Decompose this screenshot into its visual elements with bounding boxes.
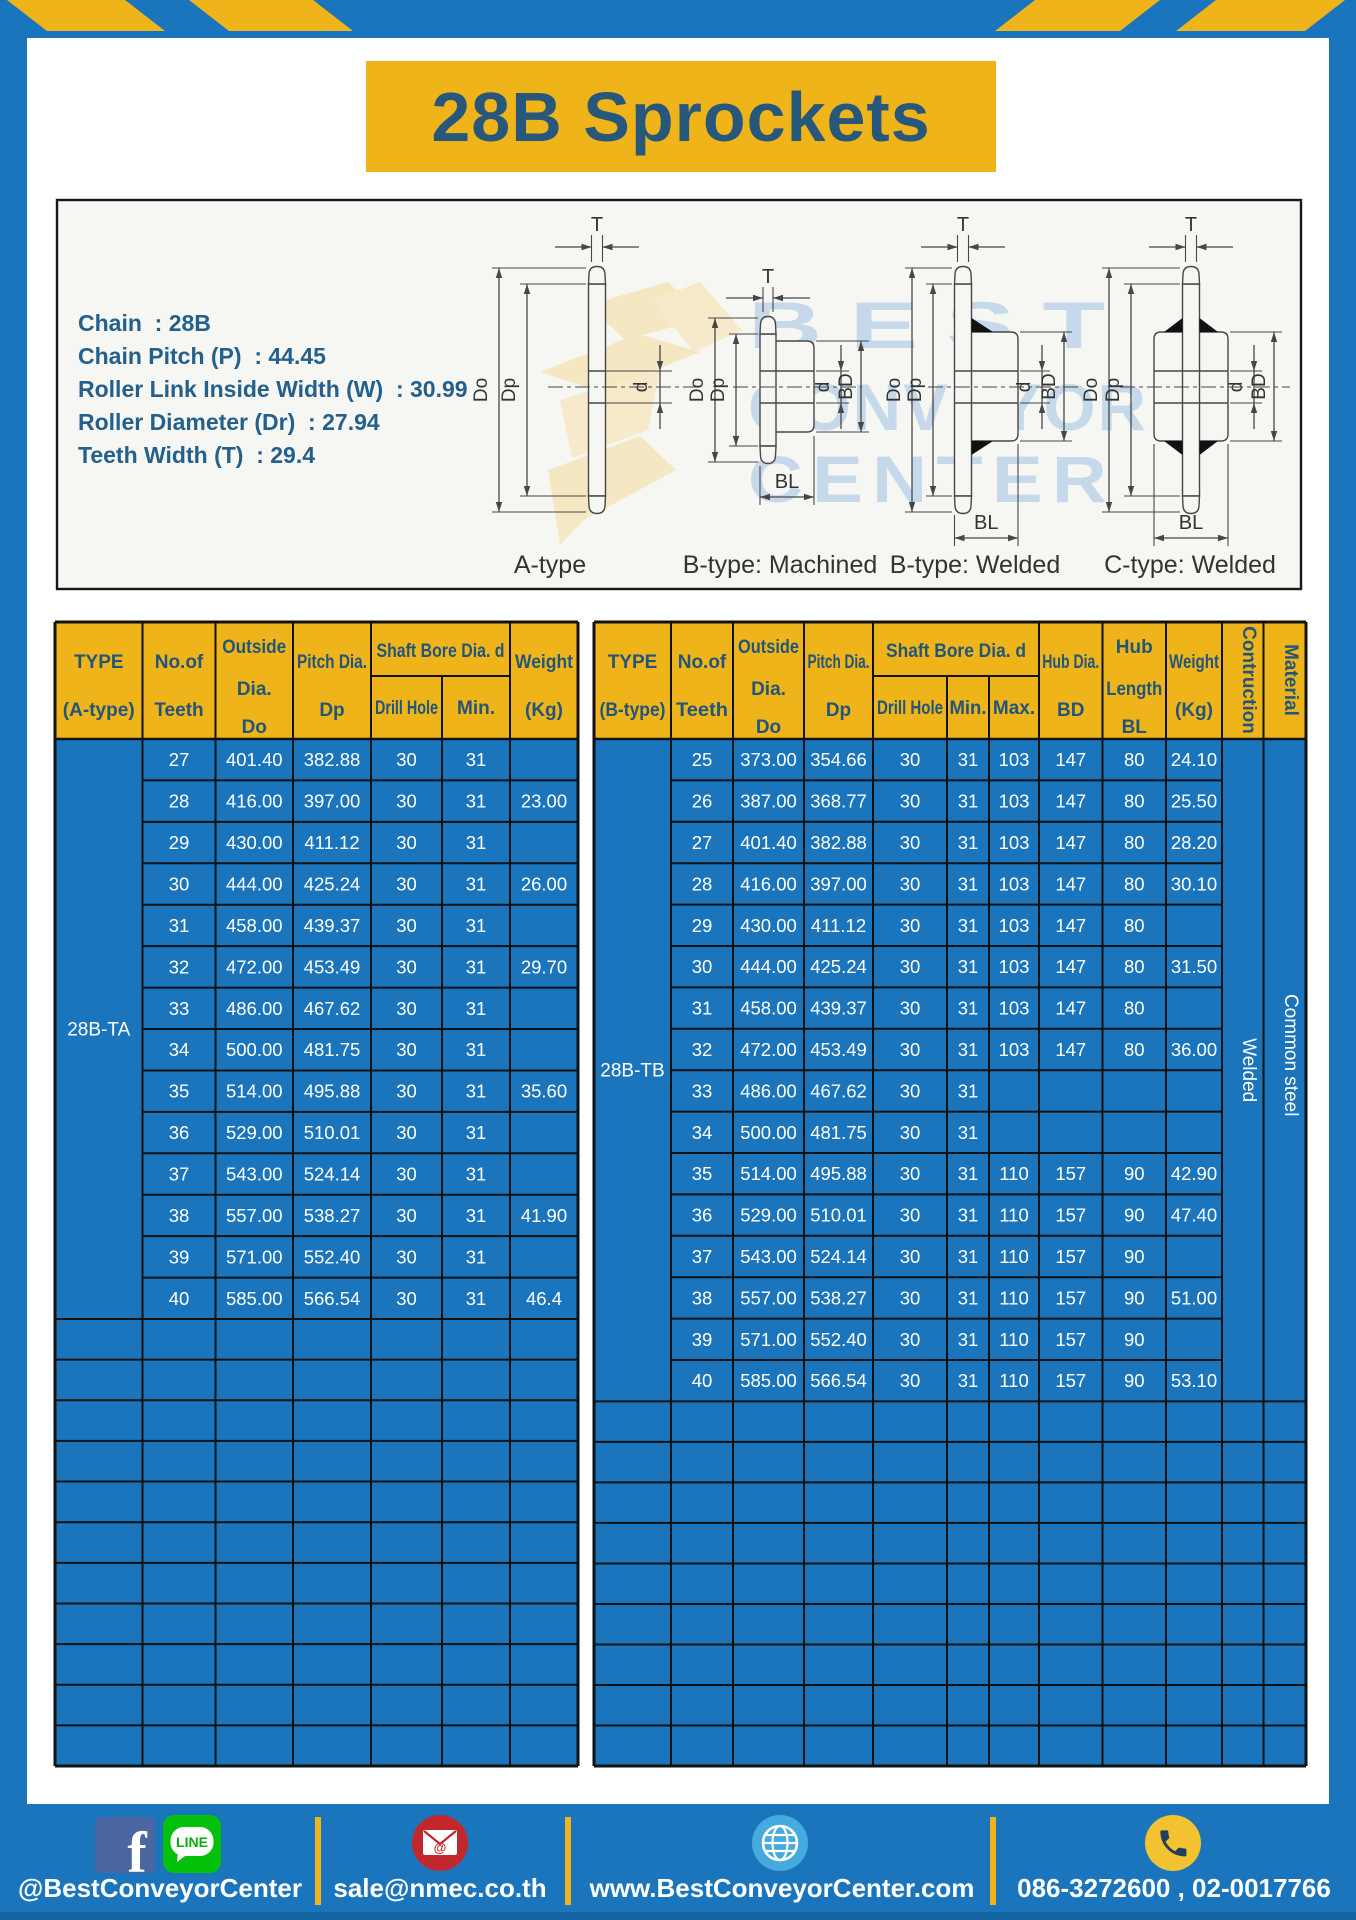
svg-text:35: 35 [169, 1081, 190, 1102]
svg-text:B-type: Welded: B-type: Welded [890, 551, 1060, 579]
svg-text:31: 31 [958, 1205, 979, 1226]
svg-text:30: 30 [396, 832, 417, 853]
svg-text:110: 110 [999, 1163, 1029, 1184]
svg-text:Outside: Outside [222, 637, 286, 658]
svg-text:28B-TA: 28B-TA [67, 1020, 130, 1041]
svg-text:401.40: 401.40 [226, 749, 283, 770]
svg-text:31: 31 [958, 1329, 979, 1350]
svg-text:Drill Hole: Drill Hole [375, 698, 438, 719]
svg-text:34: 34 [692, 1122, 713, 1143]
svg-text:472.00: 472.00 [226, 956, 283, 977]
svg-text:458.00: 458.00 [740, 998, 797, 1019]
svg-text:(Kg): (Kg) [525, 700, 563, 721]
svg-text:@: @ [434, 1840, 447, 1855]
svg-text:Min.: Min. [457, 698, 495, 719]
svg-text:585.00: 585.00 [740, 1370, 797, 1391]
svg-text:Roller Diameter (Dr) : 27.94: Roller Diameter (Dr) : 27.94 [78, 409, 380, 435]
svg-text:27: 27 [169, 749, 190, 770]
svg-text:543.00: 543.00 [226, 1164, 283, 1185]
svg-text:31: 31 [466, 998, 487, 1019]
svg-text:34: 34 [169, 1039, 190, 1060]
svg-text:373.00: 373.00 [740, 749, 797, 770]
svg-text:387.00: 387.00 [740, 791, 797, 812]
svg-text:31: 31 [466, 915, 487, 936]
svg-text:Shaft Bore Dia. d: Shaft Bore Dia. d [886, 641, 1026, 662]
svg-text:30: 30 [900, 873, 921, 894]
svg-text:27: 27 [692, 832, 713, 853]
svg-text:T: T [591, 214, 603, 236]
svg-text:31: 31 [958, 915, 979, 936]
svg-text:30: 30 [900, 1080, 921, 1101]
svg-text:30: 30 [900, 791, 921, 812]
svg-text:31: 31 [958, 1080, 979, 1101]
svg-text:30: 30 [900, 1329, 921, 1350]
svg-text:46.4: 46.4 [526, 1288, 562, 1309]
svg-text:T: T [1185, 214, 1197, 236]
svg-text:28: 28 [692, 873, 713, 894]
svg-text:31: 31 [958, 998, 979, 1019]
svg-text:425.24: 425.24 [810, 956, 867, 977]
svg-text:80: 80 [1124, 832, 1145, 853]
svg-text:Outside: Outside [738, 637, 799, 658]
svg-text:80: 80 [1124, 915, 1145, 936]
svg-text:Teeth: Teeth [154, 700, 203, 721]
svg-text:30: 30 [900, 832, 921, 853]
svg-text:Teeth: Teeth [676, 700, 728, 721]
svg-text:TYPE: TYPE [608, 652, 658, 673]
svg-text:BL: BL [1179, 512, 1203, 534]
svg-text:439.37: 439.37 [304, 915, 361, 936]
svg-text:Chain Pitch (P) : 44.45: Chain Pitch (P) : 44.45 [78, 343, 326, 369]
svg-text:37: 37 [169, 1164, 190, 1185]
svg-text:Chain : 28B: Chain : 28B [78, 310, 211, 336]
svg-text:29: 29 [692, 915, 713, 936]
svg-text:BD: BD [1039, 373, 1060, 399]
svg-text:30: 30 [900, 1205, 921, 1226]
svg-text:38: 38 [169, 1205, 190, 1226]
svg-text:416.00: 416.00 [226, 791, 283, 812]
svg-text:30: 30 [396, 791, 417, 812]
svg-text:31: 31 [466, 1164, 487, 1185]
svg-text:31: 31 [692, 998, 713, 1019]
svg-text:401.40: 401.40 [740, 832, 797, 853]
svg-text:30: 30 [900, 956, 921, 977]
svg-text:90: 90 [1124, 1329, 1145, 1350]
svg-text:31: 31 [958, 1122, 979, 1143]
svg-text:368.77: 368.77 [810, 791, 867, 812]
svg-text:31: 31 [958, 832, 979, 853]
svg-text:A-type: A-type [514, 551, 586, 579]
svg-text:33: 33 [169, 998, 190, 1019]
svg-text:Dp: Dp [708, 378, 729, 402]
svg-text:41.90: 41.90 [521, 1205, 567, 1226]
svg-text:31: 31 [958, 1246, 979, 1267]
svg-text:30: 30 [900, 1287, 921, 1308]
svg-text:486.00: 486.00 [226, 998, 283, 1019]
svg-text:d: d [631, 382, 652, 393]
svg-text:103: 103 [999, 915, 1030, 936]
svg-text:430.00: 430.00 [226, 832, 283, 853]
svg-text:31: 31 [466, 791, 487, 812]
svg-text:566.54: 566.54 [810, 1370, 867, 1391]
svg-text:524.14: 524.14 [304, 1164, 361, 1185]
svg-text:31: 31 [466, 1039, 487, 1060]
svg-text:80: 80 [1124, 749, 1145, 770]
svg-text:Hub: Hub [1116, 637, 1153, 658]
svg-text:Dp: Dp [905, 378, 926, 402]
svg-text:LINE: LINE [176, 1834, 208, 1850]
svg-text:439.37: 439.37 [810, 998, 867, 1019]
svg-text:31: 31 [466, 874, 487, 895]
svg-text:110: 110 [999, 1329, 1029, 1350]
svg-text:T: T [957, 214, 969, 236]
svg-text:481.75: 481.75 [304, 1039, 361, 1060]
svg-text:Dp: Dp [826, 700, 851, 721]
svg-text:103: 103 [999, 998, 1030, 1019]
svg-text:444.00: 444.00 [740, 956, 797, 977]
svg-text:42.90: 42.90 [1171, 1163, 1217, 1184]
svg-text:BL: BL [1122, 717, 1148, 738]
svg-text:36: 36 [692, 1205, 713, 1226]
svg-text:538.27: 538.27 [304, 1205, 361, 1226]
svg-text:90: 90 [1124, 1287, 1145, 1308]
svg-text:585.00: 585.00 [226, 1288, 283, 1309]
svg-text:30: 30 [396, 956, 417, 977]
svg-text:086-3272600 , 02-0017766: 086-3272600 , 02-0017766 [1017, 1873, 1331, 1903]
svg-text:d: d [813, 382, 834, 393]
svg-text:BL: BL [974, 512, 998, 534]
svg-text:31: 31 [169, 915, 190, 936]
svg-text:31: 31 [466, 956, 487, 977]
svg-text:31: 31 [466, 832, 487, 853]
svg-text:557.00: 557.00 [226, 1205, 283, 1226]
svg-text:51.00: 51.00 [1171, 1287, 1217, 1308]
svg-text:Min.: Min. [950, 698, 987, 719]
svg-text:31: 31 [466, 1288, 487, 1309]
svg-text:BD: BD [1249, 373, 1270, 399]
svg-text:38: 38 [692, 1287, 713, 1308]
svg-text:147: 147 [1055, 956, 1086, 977]
svg-text:157: 157 [1055, 1287, 1086, 1308]
svg-text:32: 32 [169, 956, 190, 977]
svg-text:Pitch Dia.: Pitch Dia. [297, 652, 367, 673]
svg-text:30: 30 [396, 1164, 417, 1185]
svg-text:453.49: 453.49 [810, 1039, 867, 1060]
svg-text:30: 30 [900, 998, 921, 1019]
svg-text:514.00: 514.00 [226, 1081, 283, 1102]
svg-text:Hub Dia.: Hub Dia. [1042, 652, 1099, 673]
svg-text:495.88: 495.88 [810, 1163, 867, 1184]
svg-text:486.00: 486.00 [740, 1080, 797, 1101]
svg-text:500.00: 500.00 [740, 1122, 797, 1143]
svg-text:90: 90 [1124, 1163, 1145, 1184]
svg-text:36.00: 36.00 [1171, 1039, 1217, 1060]
svg-text:40: 40 [169, 1288, 190, 1309]
svg-text:147: 147 [1055, 873, 1086, 894]
svg-text:C-type: Welded: C-type: Welded [1104, 551, 1276, 579]
svg-text:80: 80 [1124, 873, 1145, 894]
svg-text:481.75: 481.75 [810, 1122, 867, 1143]
svg-text:Length: Length [1106, 679, 1162, 700]
svg-text:30: 30 [396, 915, 417, 936]
svg-text:T: T [762, 266, 774, 288]
svg-text:37: 37 [692, 1246, 713, 1267]
svg-text:147: 147 [1055, 1039, 1086, 1060]
svg-text:382.88: 382.88 [304, 749, 361, 770]
svg-text:30: 30 [396, 1246, 417, 1267]
svg-text:30.10: 30.10 [1171, 873, 1217, 894]
svg-text:No.of: No.of [678, 652, 727, 673]
svg-text:31: 31 [958, 1287, 979, 1308]
svg-text:411.12: 411.12 [304, 832, 359, 853]
svg-text:31: 31 [958, 873, 979, 894]
svg-text:472.00: 472.00 [740, 1039, 797, 1060]
svg-text:30: 30 [692, 956, 713, 977]
svg-text:103: 103 [999, 873, 1030, 894]
svg-text:BD: BD [1057, 700, 1084, 721]
svg-text:30: 30 [900, 1039, 921, 1060]
svg-text:25: 25 [692, 749, 713, 770]
svg-text:Weight: Weight [1169, 652, 1220, 673]
svg-text:30: 30 [396, 874, 417, 895]
svg-text:31: 31 [958, 956, 979, 977]
svg-text:157: 157 [1055, 1205, 1086, 1226]
svg-text:Common steel: Common steel [1280, 994, 1301, 1117]
svg-text:32: 32 [692, 1039, 713, 1060]
svg-text:500.00: 500.00 [226, 1039, 283, 1060]
svg-text:35: 35 [692, 1163, 713, 1184]
svg-text:Roller Link Inside Width (W): Roller Link Inside Width (W) : 30.99 [78, 376, 468, 402]
svg-text:430.00: 430.00 [740, 915, 797, 936]
svg-text:110: 110 [999, 1370, 1029, 1391]
svg-text:416.00: 416.00 [740, 873, 797, 894]
svg-text:47.40: 47.40 [1171, 1205, 1217, 1226]
svg-text:552.40: 552.40 [304, 1246, 361, 1267]
svg-text:Do: Do [1081, 378, 1102, 402]
svg-text:510.01: 510.01 [304, 1122, 361, 1143]
svg-text:103: 103 [999, 749, 1030, 770]
svg-text:157: 157 [1055, 1163, 1086, 1184]
svg-text:354.66: 354.66 [810, 749, 867, 770]
svg-text:29.70: 29.70 [521, 956, 567, 977]
svg-text:467.62: 467.62 [810, 1080, 867, 1101]
svg-text:28B-TB: 28B-TB [600, 1061, 664, 1082]
svg-text:524.14: 524.14 [810, 1246, 867, 1267]
svg-text:TYPE: TYPE [74, 652, 124, 673]
svg-text:(B-type): (B-type) [600, 700, 666, 721]
svg-text:31: 31 [466, 1122, 487, 1143]
svg-text:26.00: 26.00 [521, 874, 567, 895]
svg-text:467.62: 467.62 [304, 998, 361, 1019]
svg-text:Dp: Dp [499, 378, 520, 402]
svg-text:30: 30 [396, 1122, 417, 1143]
svg-text:30: 30 [900, 1370, 921, 1391]
svg-text:(A-type): (A-type) [63, 700, 135, 721]
svg-text:Do: Do [471, 378, 492, 402]
svg-text:53.10: 53.10 [1171, 1370, 1217, 1391]
svg-text:Do: Do [884, 378, 905, 402]
svg-text:CENTER: CENTER [748, 442, 1116, 516]
svg-text:BD: BD [836, 373, 857, 399]
svg-text:31: 31 [466, 749, 487, 770]
svg-text:103: 103 [999, 832, 1030, 853]
svg-text:30: 30 [900, 1163, 921, 1184]
svg-text:529.00: 529.00 [740, 1205, 797, 1226]
svg-text:Do: Do [687, 378, 708, 402]
svg-text:566.54: 566.54 [304, 1288, 361, 1309]
svg-text:31: 31 [466, 1205, 487, 1226]
svg-text:Dia.: Dia. [237, 679, 272, 700]
svg-text:157: 157 [1055, 1370, 1086, 1391]
svg-text:552.40: 552.40 [810, 1329, 867, 1350]
svg-text:425.24: 425.24 [304, 874, 361, 895]
svg-text:411.12: 411.12 [811, 915, 866, 936]
svg-text:Weight: Weight [515, 652, 574, 673]
svg-text:444.00: 444.00 [226, 874, 283, 895]
svg-text:397.00: 397.00 [810, 873, 867, 894]
svg-text:Material: Material [1280, 644, 1301, 716]
svg-text:147: 147 [1055, 791, 1086, 812]
svg-text:510.01: 510.01 [810, 1205, 867, 1226]
svg-text:28.20: 28.20 [1171, 832, 1217, 853]
svg-text:28: 28 [169, 791, 190, 812]
svg-text:Drill Hole: Drill Hole [877, 698, 943, 719]
svg-text:110: 110 [999, 1287, 1029, 1308]
svg-text:80: 80 [1124, 791, 1145, 812]
svg-text:Shaft Bore Dia. d: Shaft Bore Dia. d [377, 641, 505, 662]
svg-text:147: 147 [1055, 749, 1086, 770]
svg-text:80: 80 [1124, 1039, 1145, 1060]
svg-text:36: 36 [169, 1122, 190, 1143]
svg-text:35.60: 35.60 [521, 1081, 567, 1102]
svg-text:529.00: 529.00 [226, 1122, 283, 1143]
svg-text:24.10: 24.10 [1171, 749, 1217, 770]
svg-text:110: 110 [999, 1205, 1029, 1226]
svg-text:30: 30 [169, 874, 190, 895]
svg-text:110: 110 [999, 1246, 1029, 1267]
svg-text:31: 31 [958, 1370, 979, 1391]
svg-text:39: 39 [692, 1329, 713, 1350]
svg-text:31: 31 [466, 1081, 487, 1102]
svg-text:29: 29 [169, 832, 190, 853]
svg-text:453.49: 453.49 [304, 956, 361, 977]
svg-text:514.00: 514.00 [740, 1163, 797, 1184]
svg-text:571.00: 571.00 [226, 1246, 283, 1267]
svg-text:23.00: 23.00 [521, 791, 567, 812]
svg-text:Contruction: Contruction [1238, 626, 1259, 734]
svg-text:80: 80 [1124, 956, 1145, 977]
svg-text:31: 31 [958, 749, 979, 770]
svg-text:147: 147 [1055, 998, 1086, 1019]
svg-text:Welded: Welded [1238, 1038, 1259, 1102]
svg-text:90: 90 [1124, 1205, 1145, 1226]
svg-text:28B Sprockets: 28B Sprockets [431, 78, 930, 156]
svg-text:39: 39 [169, 1246, 190, 1267]
svg-text:157: 157 [1055, 1246, 1086, 1267]
svg-text:Do: Do [242, 717, 267, 738]
svg-text:30: 30 [396, 998, 417, 1019]
svg-text:Pitch Dia.: Pitch Dia. [808, 652, 870, 673]
svg-text:90: 90 [1124, 1370, 1145, 1391]
svg-text:30: 30 [900, 1122, 921, 1143]
svg-text:103: 103 [999, 1039, 1030, 1060]
svg-text:30: 30 [396, 1288, 417, 1309]
svg-text:sale@nmec.co.th: sale@nmec.co.th [333, 1873, 546, 1903]
svg-text:Dia.: Dia. [751, 679, 786, 700]
svg-text:30: 30 [396, 749, 417, 770]
svg-text:103: 103 [999, 791, 1030, 812]
svg-text:30: 30 [900, 1246, 921, 1267]
svg-text:Max.: Max. [993, 698, 1035, 719]
svg-text:147: 147 [1055, 915, 1086, 936]
svg-text:(Kg): (Kg) [1175, 700, 1213, 721]
svg-text:147: 147 [1055, 832, 1086, 853]
svg-text:571.00: 571.00 [740, 1329, 797, 1350]
svg-text:495.88: 495.88 [304, 1081, 361, 1102]
svg-text:Do: Do [756, 717, 781, 738]
svg-text:d: d [1014, 382, 1035, 393]
svg-text:d: d [1226, 382, 1247, 393]
svg-text:Dp: Dp [1103, 378, 1124, 402]
svg-text:Dp: Dp [319, 700, 344, 721]
svg-text:543.00: 543.00 [740, 1246, 797, 1267]
svg-text:30: 30 [900, 915, 921, 936]
svg-text:458.00: 458.00 [226, 915, 283, 936]
svg-text:157: 157 [1055, 1329, 1086, 1350]
svg-text:538.27: 538.27 [810, 1287, 867, 1308]
svg-text:33: 33 [692, 1080, 713, 1101]
svg-text:31: 31 [466, 1246, 487, 1267]
svg-text:397.00: 397.00 [304, 791, 361, 812]
svg-text:31: 31 [958, 1163, 979, 1184]
svg-text:382.88: 382.88 [810, 832, 867, 853]
svg-text:31: 31 [958, 791, 979, 812]
svg-text:www.BestConveyorCenter.com: www.BestConveyorCenter.com [589, 1873, 975, 1903]
svg-text:30: 30 [900, 749, 921, 770]
svg-text:31: 31 [958, 1039, 979, 1060]
svg-text:@BestConveyorCenter: @BestConveyorCenter [18, 1873, 302, 1903]
svg-text:B-type: Machined: B-type: Machined [683, 551, 878, 579]
svg-text:26: 26 [692, 791, 713, 812]
svg-text:30: 30 [396, 1205, 417, 1226]
svg-text:80: 80 [1124, 998, 1145, 1019]
svg-text:90: 90 [1124, 1246, 1145, 1267]
svg-text:No.of: No.of [155, 652, 204, 673]
svg-text:Teeth Width (T) : 29.4: Teeth Width (T) : 29.4 [78, 442, 315, 468]
svg-text:BL: BL [775, 471, 799, 493]
svg-text:30: 30 [396, 1039, 417, 1060]
svg-text:31.50: 31.50 [1171, 956, 1217, 977]
svg-text:40: 40 [692, 1370, 713, 1391]
svg-text:103: 103 [999, 956, 1030, 977]
svg-text:557.00: 557.00 [740, 1287, 797, 1308]
svg-text:25.50: 25.50 [1171, 791, 1217, 812]
svg-text:30: 30 [396, 1081, 417, 1102]
